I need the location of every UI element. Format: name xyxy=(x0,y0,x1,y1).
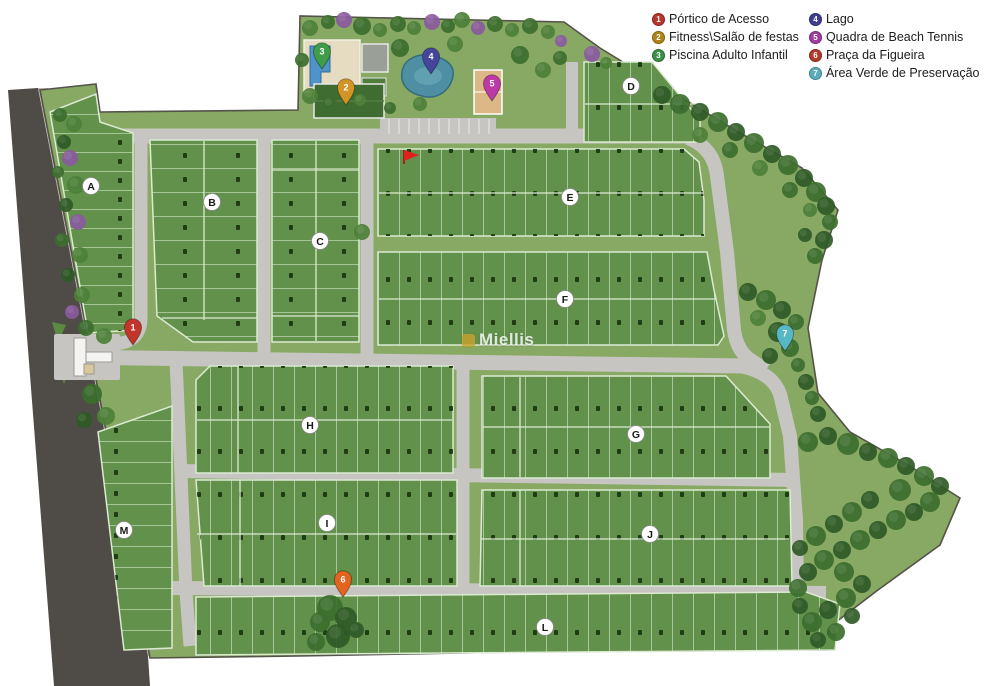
legend: 1Pórtico de Acesso2Fitness\Salão de fest… xyxy=(652,12,980,80)
tree-highlight xyxy=(304,90,312,98)
tree-highlight xyxy=(724,144,732,152)
tree-highlight xyxy=(812,634,820,642)
tree-highlight xyxy=(794,542,802,550)
tree-highlight xyxy=(800,376,808,384)
tree-highlight xyxy=(443,20,450,27)
tree-highlight xyxy=(781,157,791,167)
tree-highlight xyxy=(797,171,806,180)
tree-highlight xyxy=(801,434,811,444)
tree-highlight xyxy=(829,625,838,634)
tree-highlight xyxy=(790,316,798,324)
tree-highlight xyxy=(74,249,82,257)
block-badge-G: G xyxy=(628,426,645,443)
tree-highlight xyxy=(809,528,819,538)
tree-highlight xyxy=(338,609,349,620)
tree-highlight xyxy=(741,285,750,294)
tree-highlight xyxy=(807,392,814,399)
tree-highlight xyxy=(765,147,774,156)
tree-highlight xyxy=(393,41,402,50)
tree-highlight xyxy=(837,564,847,574)
legend-item: 3Piscina Adulto Infantil xyxy=(652,48,799,62)
block-letter: I xyxy=(326,518,329,530)
tree-highlight xyxy=(61,199,68,206)
tree-highlight xyxy=(356,226,364,234)
legend-marker-icon: 7 xyxy=(809,67,822,80)
tree-highlight xyxy=(59,136,66,143)
tree-highlight xyxy=(817,552,827,562)
tree-highlight xyxy=(863,493,872,502)
tree-highlight xyxy=(456,14,464,22)
legend-item: 5Quadra de Beach Tennis xyxy=(809,30,980,44)
tree-highlight xyxy=(889,512,899,522)
tree-highlight xyxy=(764,350,772,358)
tree-highlight xyxy=(821,429,830,438)
tree-highlight xyxy=(375,24,382,31)
legend-marker-icon: 5 xyxy=(809,31,822,44)
tree-highlight xyxy=(809,250,817,258)
pin-number: 7 xyxy=(782,329,787,339)
tree-highlight xyxy=(824,216,832,224)
tree-highlight xyxy=(54,167,60,173)
tree-highlight xyxy=(524,20,532,28)
legend-item: 1Pórtico de Acesso xyxy=(652,12,799,26)
tree-highlight xyxy=(64,152,72,160)
tree-highlight xyxy=(747,135,757,145)
tree-highlight xyxy=(555,52,562,59)
tree-highlight xyxy=(320,598,333,611)
pin-number: 2 xyxy=(343,83,348,93)
tree-highlight xyxy=(923,494,933,504)
tree-highlight xyxy=(821,603,830,612)
tree-highlight xyxy=(489,18,497,26)
block-F xyxy=(378,252,724,345)
tree-highlight xyxy=(809,184,819,194)
block-G xyxy=(482,376,770,478)
pin-number: 3 xyxy=(319,47,324,57)
block-letter: C xyxy=(316,236,324,248)
tree-highlight xyxy=(800,229,807,236)
block-badge-J: J xyxy=(642,526,659,543)
block-badge-B: B xyxy=(204,194,221,211)
tree-highlight xyxy=(693,105,702,114)
block-badge-A: A xyxy=(83,178,100,195)
tree-highlight xyxy=(694,129,702,137)
block-letter: F xyxy=(562,294,569,306)
tree-highlight xyxy=(805,204,812,211)
block-I xyxy=(196,480,457,586)
tree-highlight xyxy=(513,48,522,57)
tree-highlight xyxy=(297,54,304,61)
block-badge-M: M xyxy=(116,522,133,539)
block-letter: M xyxy=(120,525,129,537)
tree-highlight xyxy=(63,269,70,276)
tree-highlight xyxy=(855,577,864,586)
map-canvas: ABCDEFGHIJLM 1234567 xyxy=(0,0,1000,686)
legend-marker-icon: 3 xyxy=(652,49,665,62)
tree-highlight xyxy=(801,565,810,574)
block-badge-F: F xyxy=(557,291,574,308)
block-letter: D xyxy=(627,81,635,93)
tree-highlight xyxy=(329,626,341,638)
site-plan-image: ABCDEFGHIJLM 1234567 1Pórtico de Acesso2… xyxy=(0,0,1000,686)
block-letter: L xyxy=(542,622,549,634)
tree-highlight xyxy=(355,19,364,28)
legend-label: Pórtico de Acesso xyxy=(669,12,769,26)
tree-highlight xyxy=(98,330,106,338)
legend-column-1: 1Pórtico de Acesso2Fitness\Salão de fest… xyxy=(652,12,799,80)
tree-highlight xyxy=(386,103,392,109)
block-J xyxy=(480,490,792,586)
fitness-building xyxy=(362,44,388,72)
legend-marker-icon: 2 xyxy=(652,31,665,44)
tree-highlight xyxy=(338,14,346,22)
pin-number: 1 xyxy=(130,323,135,333)
block-badge-L: L xyxy=(537,619,554,636)
tree-highlight xyxy=(861,445,870,454)
tree-highlight xyxy=(754,162,762,170)
block-letter: A xyxy=(87,181,95,193)
block-B xyxy=(150,140,257,342)
tree-highlight xyxy=(323,16,330,23)
tree-highlight xyxy=(449,38,457,46)
tree-highlight xyxy=(507,24,514,31)
legend-label: Área Verde de Preservação xyxy=(826,66,980,80)
tree-highlight xyxy=(791,581,800,590)
tree-highlight xyxy=(933,479,942,488)
block-letter: E xyxy=(566,192,573,204)
legend-marker-icon: 6 xyxy=(809,49,822,62)
tree-highlight xyxy=(55,109,62,116)
tree-highlight xyxy=(784,184,792,192)
tree-highlight xyxy=(392,18,400,26)
tree-highlight xyxy=(729,125,738,134)
tree-highlight xyxy=(881,450,891,460)
pin-number: 4 xyxy=(428,52,433,62)
tree-highlight xyxy=(673,96,683,106)
tree-highlight xyxy=(655,88,664,97)
legend-item: 2Fitness\Salão de festas xyxy=(652,30,799,44)
tree-highlight xyxy=(853,532,863,542)
tree-highlight xyxy=(69,178,78,187)
tree-highlight xyxy=(711,114,721,124)
block-badge-D: D xyxy=(623,78,640,95)
tree-highlight xyxy=(602,58,608,64)
tree-highlight xyxy=(586,48,594,56)
tree-highlight xyxy=(537,64,545,72)
legend-column-2: 4Lago5Quadra de Beach Tennis6Praça da Fi… xyxy=(809,12,980,80)
block-badge-I: I xyxy=(319,515,336,532)
tree-highlight xyxy=(794,600,802,608)
tree-highlight xyxy=(840,435,851,446)
block-letter: H xyxy=(306,420,314,432)
tree-highlight xyxy=(409,22,416,29)
tree-highlight xyxy=(80,322,88,330)
tree-highlight xyxy=(76,289,84,297)
legend-label: Piscina Adulto Infantil xyxy=(669,48,788,62)
tree-highlight xyxy=(759,292,769,302)
block-E xyxy=(378,149,704,236)
tree-highlight xyxy=(415,98,422,105)
tree-highlight xyxy=(325,98,332,105)
tree-highlight xyxy=(473,22,480,29)
tree-highlight xyxy=(793,359,800,366)
legend-item: 7Área Verde de Preservação xyxy=(809,66,980,80)
tree-highlight xyxy=(845,504,855,514)
block-letter: G xyxy=(632,429,640,441)
tree-highlight xyxy=(350,624,358,632)
block-L xyxy=(196,592,840,655)
tree-highlight xyxy=(313,614,323,624)
block-H xyxy=(196,366,453,473)
block-badge-H: H xyxy=(302,417,319,434)
tree-highlight xyxy=(812,408,820,416)
tree-highlight xyxy=(309,635,318,644)
legend-marker-icon: 4 xyxy=(809,13,822,26)
block-letter: J xyxy=(647,529,653,541)
legend-marker-icon: 1 xyxy=(652,13,665,26)
block-badge-C: C xyxy=(312,233,329,250)
legend-item: 6Praça da Figueira xyxy=(809,48,980,62)
legend-label: Fitness\Salão de festas xyxy=(669,30,799,44)
pin-number: 6 xyxy=(340,575,345,585)
block-letter: B xyxy=(208,197,216,209)
parking-strip xyxy=(380,118,496,135)
tree-highlight xyxy=(839,590,849,600)
tree-highlight xyxy=(917,468,927,478)
tree-highlight xyxy=(72,216,80,224)
legend-label: Quadra de Beach Tennis xyxy=(826,30,963,44)
legend-label: Lago xyxy=(826,12,854,26)
tree-highlight xyxy=(543,26,550,33)
tree-highlight xyxy=(846,610,854,618)
tree-highlight xyxy=(819,199,828,208)
tree-highlight xyxy=(835,543,844,552)
tree-highlight xyxy=(68,118,76,126)
tree-highlight xyxy=(892,481,903,492)
tree-highlight xyxy=(304,22,312,30)
tree-highlight xyxy=(85,386,95,396)
tree-highlight xyxy=(817,233,826,242)
tree-highlight xyxy=(907,505,916,514)
tree-highlight xyxy=(57,234,64,241)
tree-highlight xyxy=(78,414,86,422)
tree-highlight xyxy=(805,614,815,624)
tree-highlight xyxy=(775,303,784,312)
legend-label: Praça da Figueira xyxy=(826,48,925,62)
tree-highlight xyxy=(827,517,836,526)
tree-highlight xyxy=(356,95,362,101)
tree-highlight xyxy=(99,409,108,418)
tree-highlight xyxy=(67,306,74,313)
tree-highlight xyxy=(871,523,880,532)
block-badge-E: E xyxy=(562,189,579,206)
legend-item: 4Lago xyxy=(809,12,980,26)
tree-highlight xyxy=(426,16,434,24)
tree-highlight xyxy=(899,459,908,468)
pin-number: 5 xyxy=(489,79,494,89)
tree-highlight xyxy=(557,36,563,42)
tree-highlight xyxy=(752,312,760,320)
